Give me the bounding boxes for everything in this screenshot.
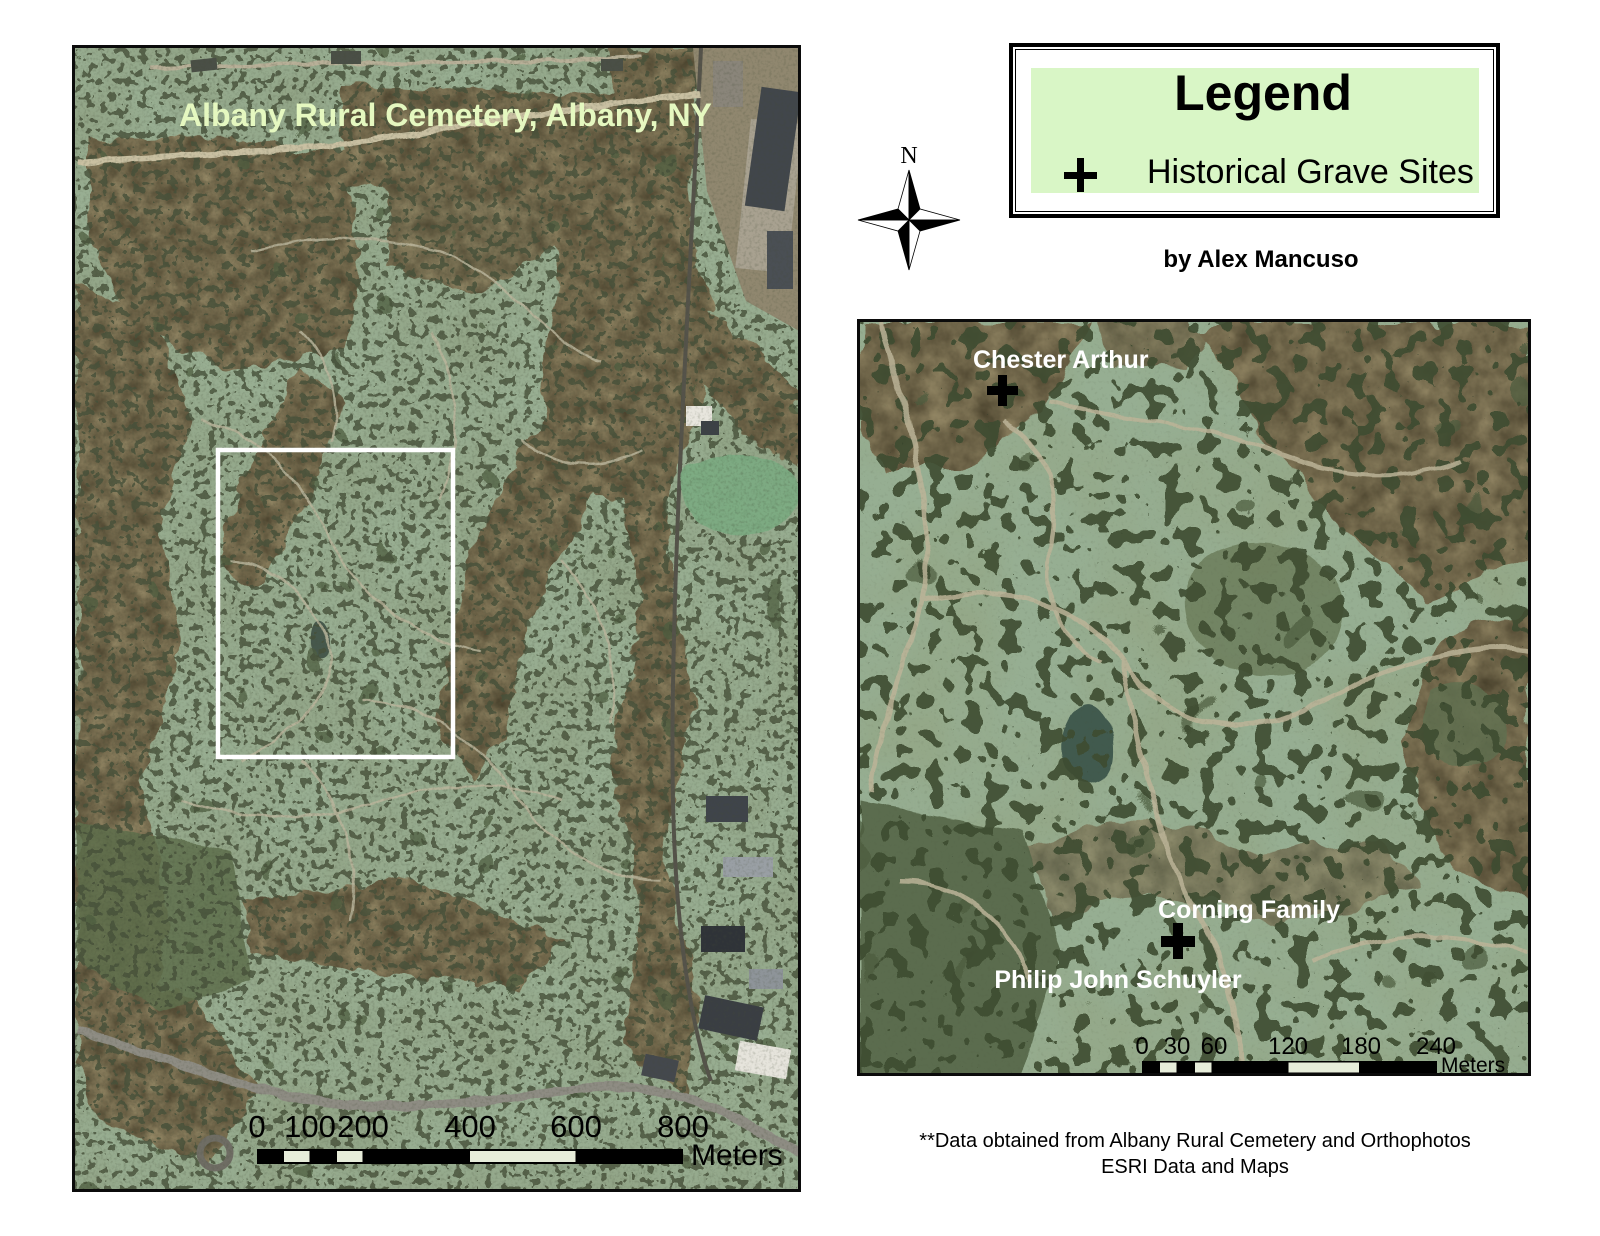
svg-text:180: 180 [1341,1033,1381,1060]
svg-text:N: N [900,143,917,169]
svg-text:600: 600 [550,1109,602,1144]
svg-text:30: 30 [1164,1033,1191,1060]
svg-text:Corning Family: Corning Family [1158,896,1340,924]
svg-text:Albany Rural Cemetery, Albany,: Albany Rural Cemetery, Albany, NY [179,97,712,133]
svg-text:400: 400 [444,1109,496,1144]
svg-text:120: 120 [1268,1033,1308,1060]
svg-text:0: 0 [1135,1033,1148,1060]
svg-text:Meters: Meters [691,1139,783,1172]
svg-text:Philip John Schuyler: Philip John Schuyler [994,966,1242,994]
svg-text:0: 0 [248,1109,265,1144]
svg-text:Meters: Meters [1441,1054,1505,1075]
svg-text:Chester Arthur: Chester Arthur [973,346,1149,374]
svg-text:60: 60 [1201,1033,1228,1060]
svg-text:200: 200 [337,1109,389,1144]
svg-text:100: 100 [284,1109,336,1144]
